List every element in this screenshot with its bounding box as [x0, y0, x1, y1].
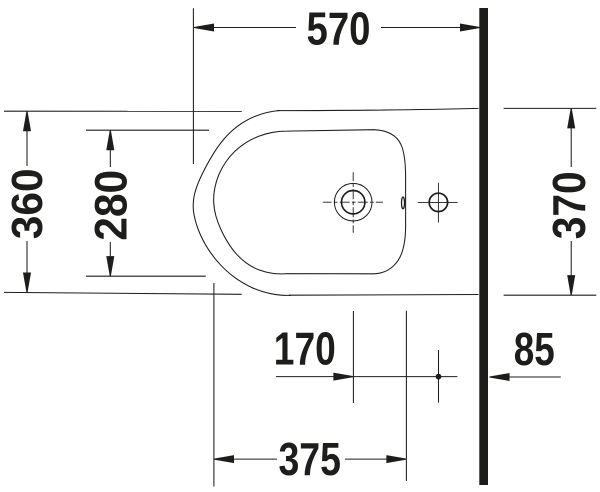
svg-text:375: 375	[278, 433, 341, 485]
svg-text:170: 170	[274, 323, 336, 375]
svg-text:370: 370	[543, 171, 595, 239]
svg-text:85: 85	[514, 323, 555, 375]
svg-text:570: 570	[307, 3, 371, 55]
svg-text:360: 360	[3, 168, 52, 239]
svg-text:280: 280	[85, 170, 136, 241]
